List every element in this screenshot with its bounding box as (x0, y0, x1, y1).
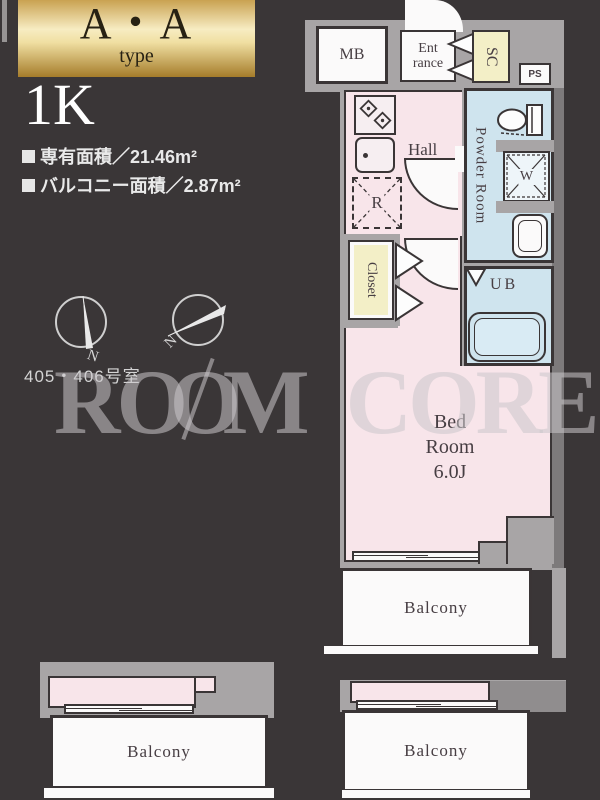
floorplan-page: A・A type 1K 専有面積／21.46m² バルコニー面積／2.87m² … (0, 0, 600, 800)
sc-label: SC (482, 47, 500, 67)
watermark-m: M (223, 351, 306, 453)
entrance-label-1: Ent (418, 41, 437, 56)
wall-notch (506, 516, 554, 564)
ps-label: PS (528, 69, 541, 80)
toilet-icon (494, 99, 552, 145)
window (356, 700, 498, 710)
powder-room-label: Powder Room (468, 96, 492, 256)
balcony-bottom-right: Balcony (342, 710, 530, 792)
shoe-closet: SC (472, 30, 510, 83)
window (64, 704, 194, 714)
entrance-approach (405, 0, 463, 32)
watermark-logo: ROOMCORE (54, 352, 595, 452)
exclusive-area-text: 専有面積／21.46m² (40, 147, 197, 167)
bath-door-icon (466, 268, 488, 288)
balcony-label: Balcony (127, 742, 191, 762)
wall-right-lower (552, 568, 566, 658)
bullet-square-icon (22, 150, 35, 163)
stove-icon (354, 95, 396, 135)
balcony-label: Balcony (404, 741, 468, 761)
type-word: type (18, 46, 255, 66)
balcony-label: Balcony (404, 598, 468, 618)
folding-door-icon (394, 242, 426, 322)
balcony-slab (324, 646, 538, 654)
window (352, 551, 480, 562)
balcony-area-line: バルコニー面積／2.87m² (22, 172, 241, 201)
closet: Closet (348, 240, 394, 320)
compass-icon: N (162, 292, 230, 350)
refrigerator-space: R (352, 177, 402, 229)
closet-label: Closet (363, 262, 379, 298)
watermark-r: R (54, 351, 116, 453)
wall-stub (496, 201, 554, 213)
washbasin-icon (512, 214, 548, 258)
washer-label: W (518, 169, 535, 185)
sink-icon (355, 137, 395, 173)
type-badge: A・A type (18, 0, 255, 77)
balcony-bottom-left: Balcony (50, 715, 268, 789)
neighbor-wall-step (488, 681, 566, 712)
type-name: A・A (18, 0, 255, 48)
meter-box: MB (316, 26, 388, 84)
mb-label: MB (340, 46, 365, 64)
layout-type: 1K (24, 74, 95, 136)
unit-bath-label: UB (490, 276, 518, 294)
washbasin-bowl (518, 220, 542, 252)
washer-space: W (503, 151, 550, 202)
balcony-slab (342, 790, 530, 798)
pipe-space: PS (519, 63, 551, 85)
corner-strip (2, 0, 7, 42)
balcony-area-text: バルコニー面積／2.87m² (40, 176, 241, 196)
exclusive-area-line: 専有面積／21.46m² (22, 143, 241, 172)
entrance-label-2: rance (413, 56, 443, 71)
watermark-core: CORE (346, 351, 596, 453)
area-info: 専有面積／21.46m² バルコニー面積／2.87m² (22, 143, 241, 201)
faucet-dot (363, 153, 368, 158)
balcony-slab (44, 788, 274, 798)
bedroom-size: 6.0J (390, 460, 510, 485)
balcony-main: Balcony (340, 568, 532, 648)
refrigerator-label: R (369, 193, 384, 213)
bullet-square-icon (22, 179, 35, 192)
hall-label: Hall (408, 140, 437, 160)
closet-inner: Closet (354, 245, 388, 315)
